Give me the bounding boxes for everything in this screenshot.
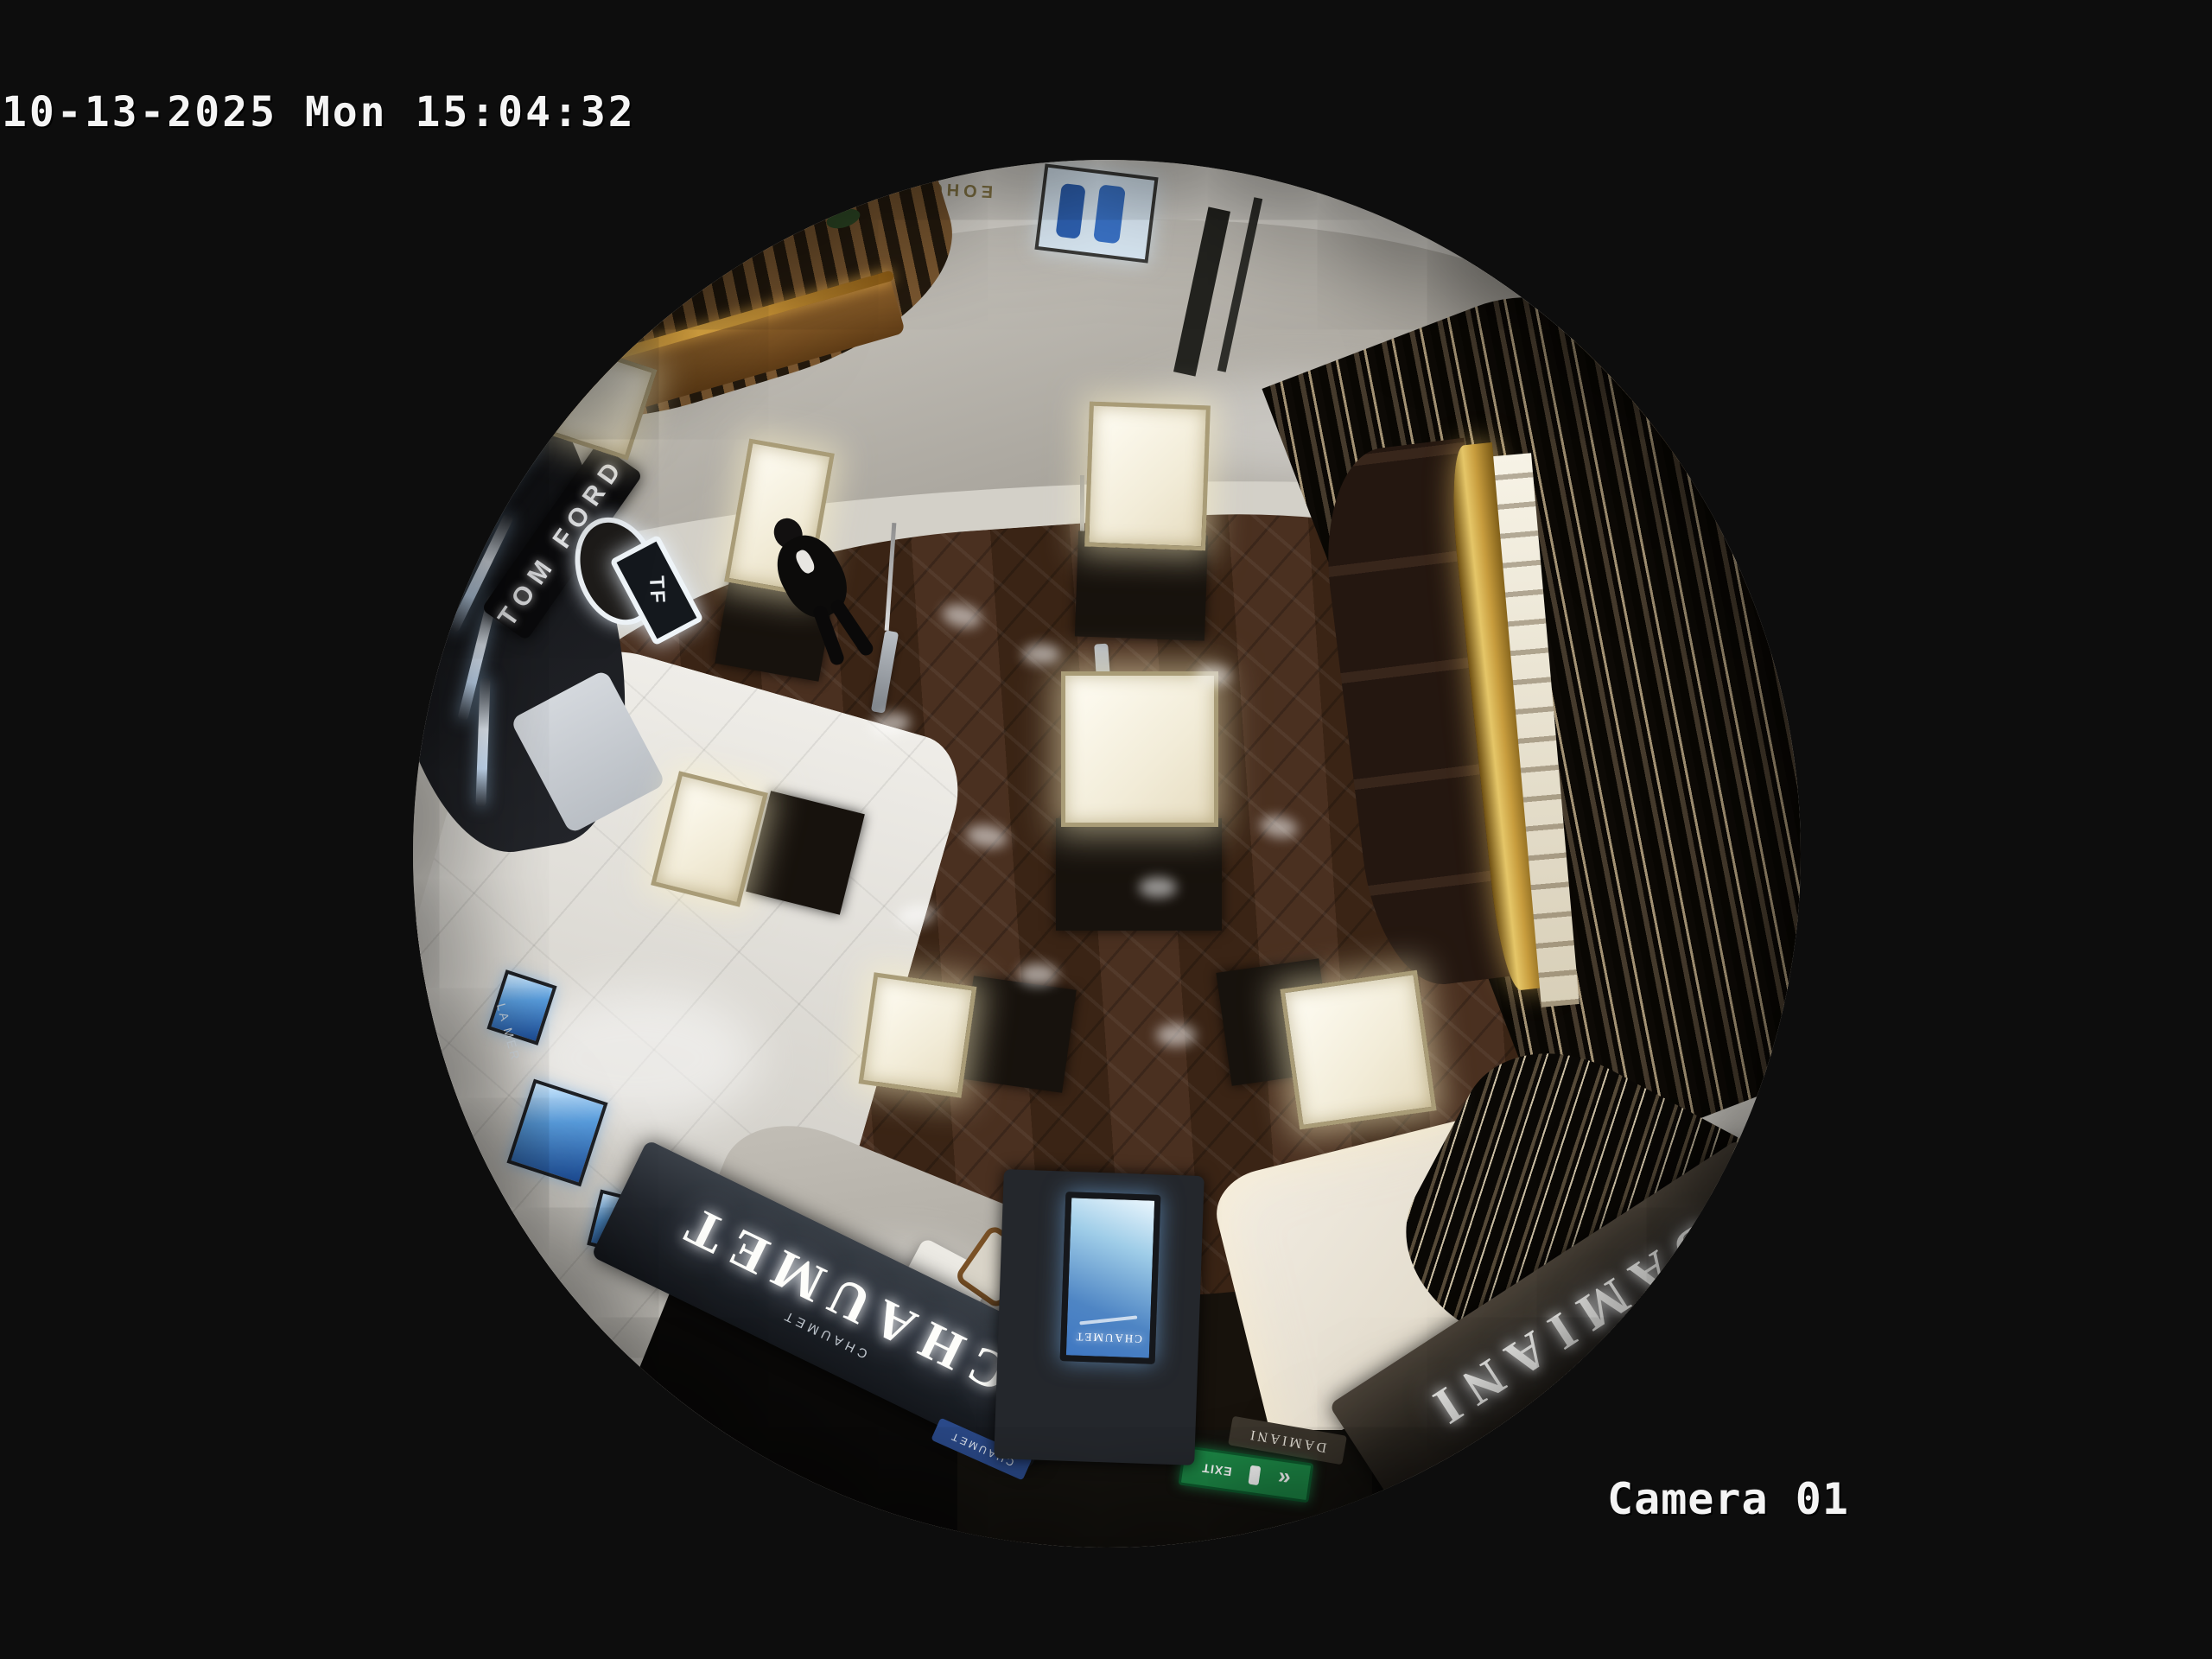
osd-timestamp: 10-13-2025 Mon 15:04:32 <box>2 88 636 137</box>
tf-logo-text: TF <box>644 575 670 606</box>
exit-arrow-icon: « <box>1276 1467 1292 1491</box>
corridor-ad-screen <box>1034 163 1158 263</box>
kiosk-screen: CHAUMET <box>1060 1192 1161 1364</box>
display-case-bottom-right <box>1280 970 1436 1130</box>
ad-screen-figure <box>1055 183 1085 239</box>
exit-sign-text: EXIT <box>1201 1461 1233 1479</box>
display-pedestal <box>1056 818 1222 931</box>
fisheye-camera-view: EOHCX TOM FORD TF LA MER <box>413 160 1801 1548</box>
floor-reflection <box>1195 665 1231 686</box>
display-case-center <box>1061 671 1218 827</box>
display-pedestal <box>959 976 1077 1093</box>
floor-reflection <box>1156 1024 1196 1046</box>
floor-reflection <box>1139 877 1177 898</box>
display-case-top <box>1084 402 1211 551</box>
kiosk-screen-streak <box>1080 1315 1138 1325</box>
floor-reflection <box>1022 644 1060 664</box>
ad-screen-figure <box>1093 184 1126 244</box>
floor-reflection <box>1018 963 1058 986</box>
exit-figure-icon <box>1249 1465 1262 1485</box>
cctv-frame: { "overlay": { "timestamp": "10-13-2025 … <box>0 0 2212 1659</box>
display-case-bottom-left <box>859 972 977 1097</box>
kiosk-brand-text: CHAUMET <box>1074 1330 1142 1346</box>
